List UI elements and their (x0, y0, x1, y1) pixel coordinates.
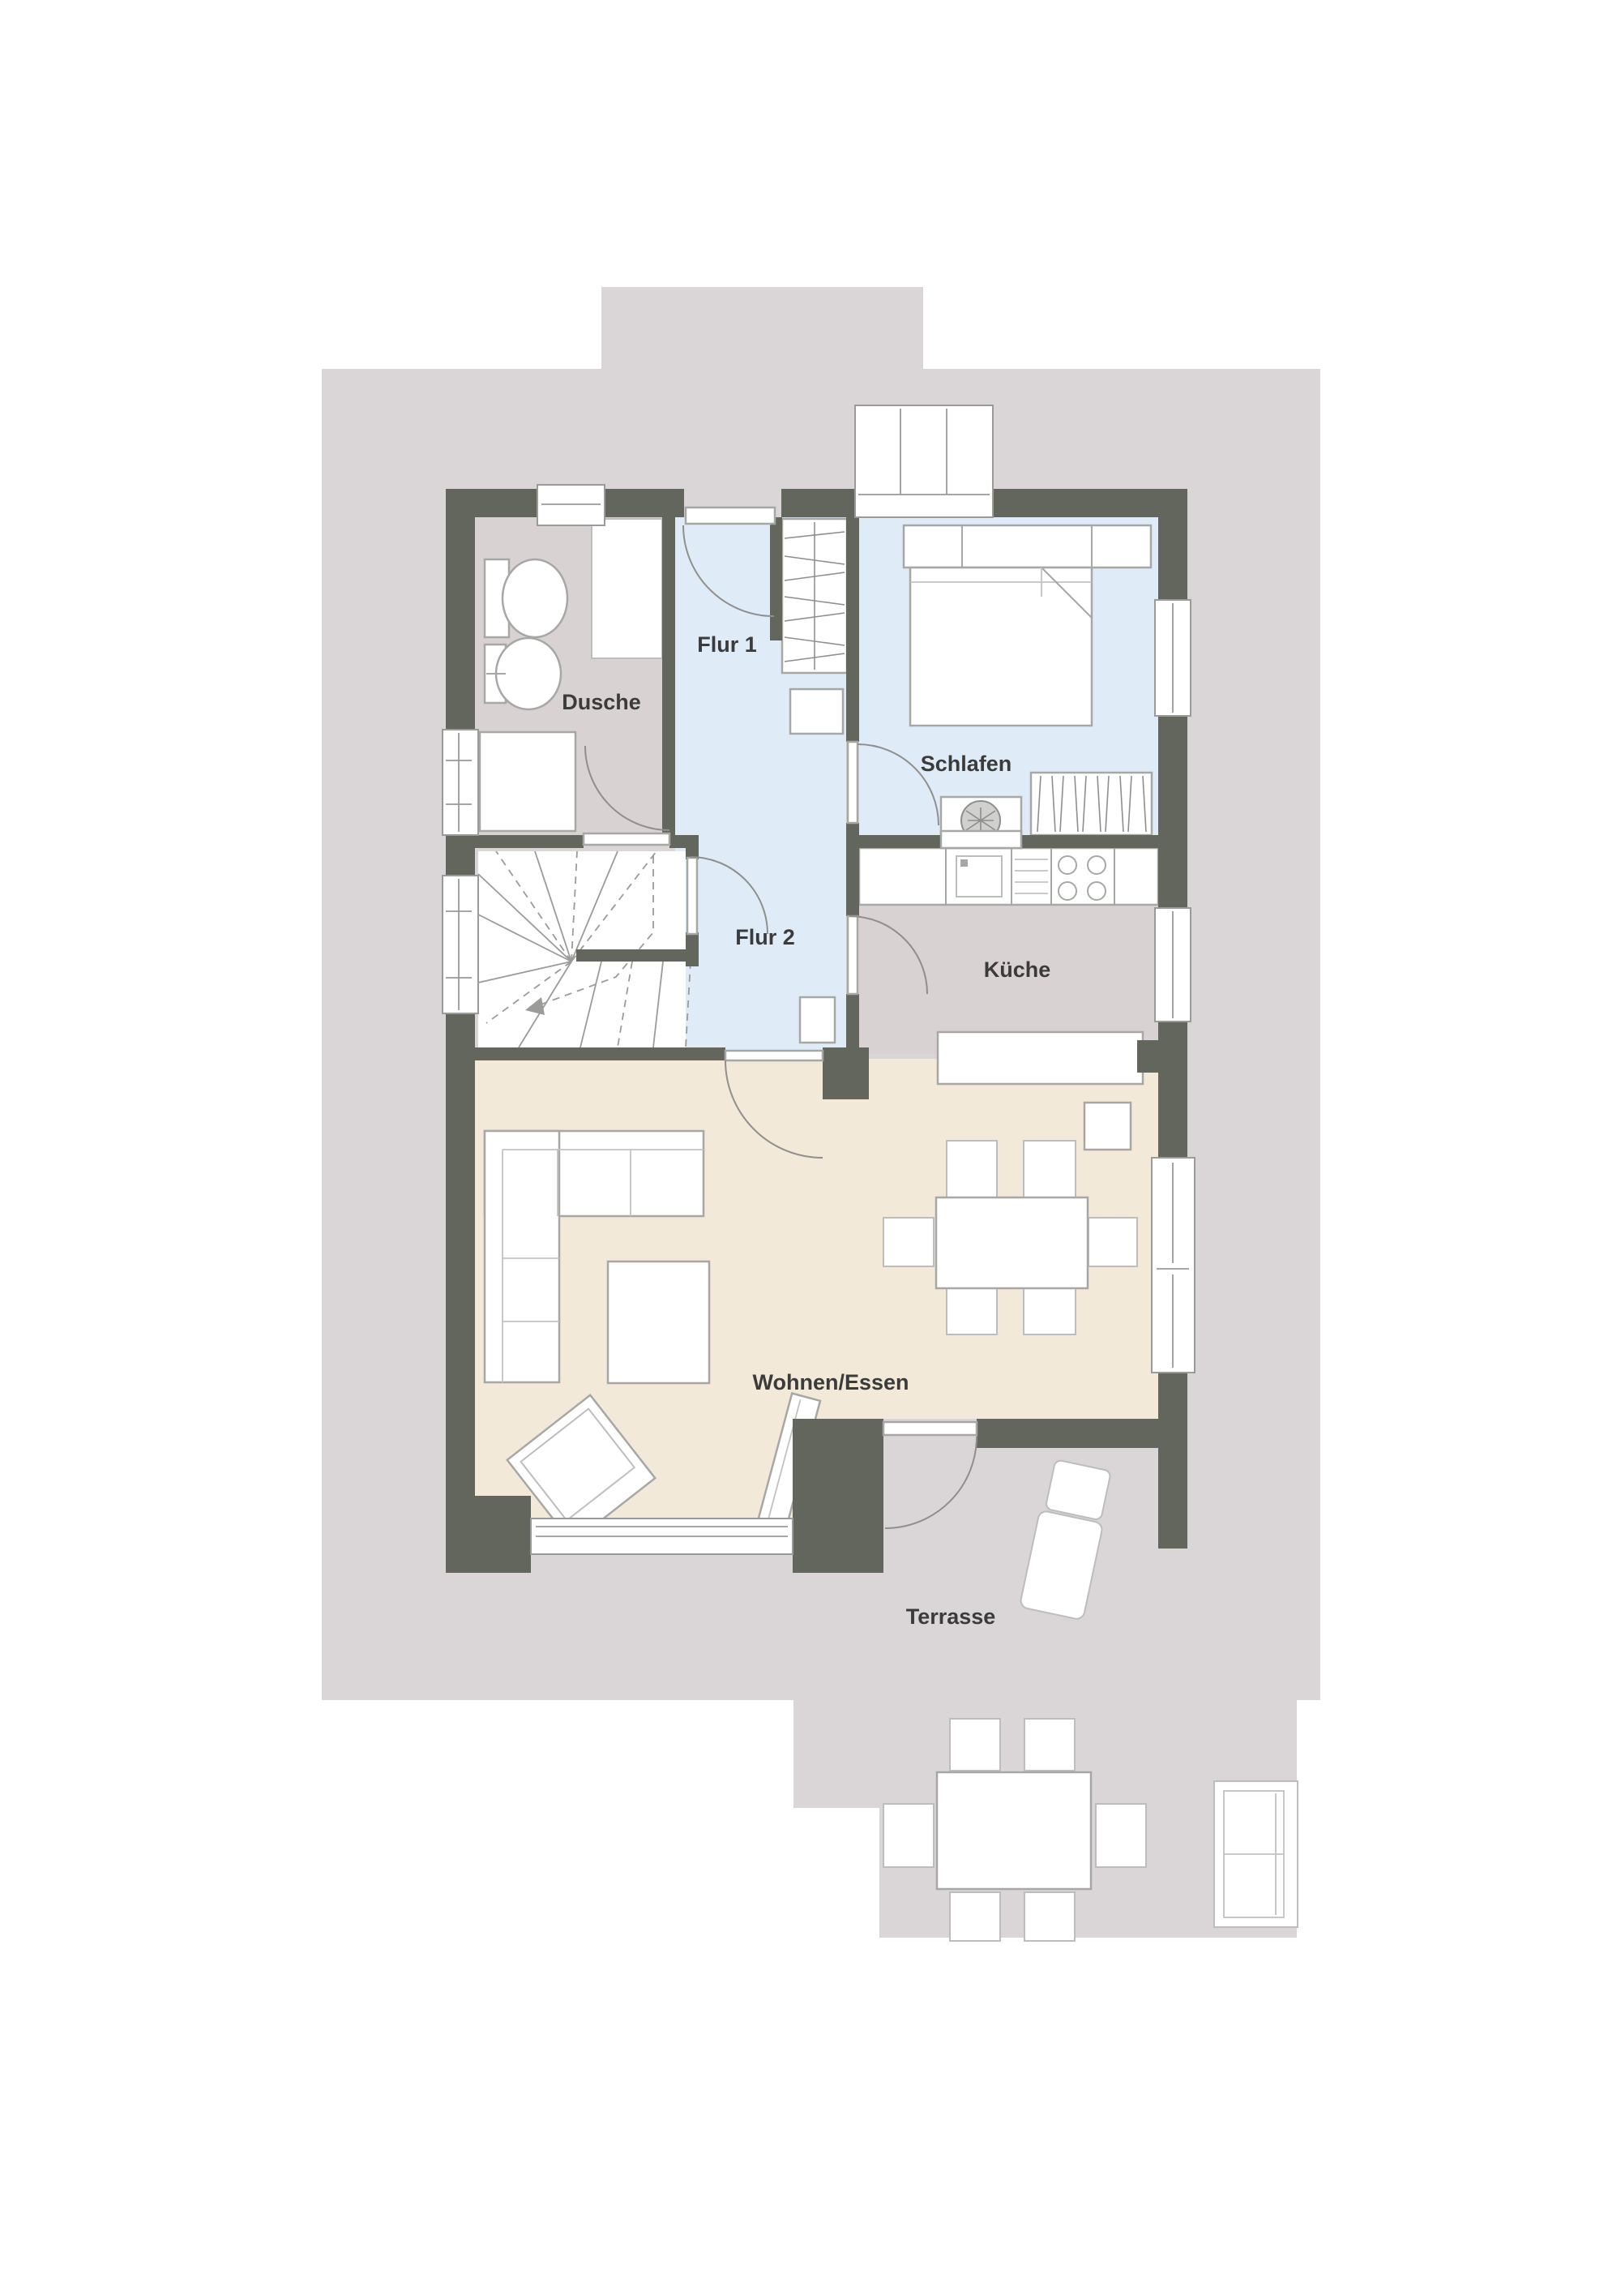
window-bottom-living (531, 1519, 793, 1554)
outdoor-chair (1024, 1892, 1075, 1941)
outdoor-chair (883, 1804, 934, 1867)
coffee-table (608, 1262, 709, 1383)
washer-unit (480, 732, 575, 831)
label-flur1: Flur 1 (697, 632, 757, 657)
hall-cabinet (790, 689, 843, 734)
outdoor-chair (950, 1719, 1000, 1771)
hall2-cabinet (800, 997, 835, 1043)
floor-plan-page: Flur 1 Dusche Schlafen Flur 2 Küche Wohn… (0, 0, 1621, 2296)
outdoor-chair (1096, 1804, 1146, 1867)
window-left-1 (443, 730, 478, 835)
window-entrance-bay (855, 405, 993, 517)
dining-table (936, 1197, 1088, 1288)
washbasin (485, 638, 561, 709)
corner-block-sw (446, 1496, 531, 1573)
outdoor-chair (950, 1892, 1000, 1941)
plant-sill-gap (941, 831, 1021, 848)
label-wohnen: Wohnen/Essen (752, 1370, 909, 1394)
window-right-essen (1152, 1158, 1195, 1373)
dining-chair (1024, 1286, 1076, 1334)
bed-headboard (904, 525, 1151, 568)
kitchen-pier (1137, 1040, 1170, 1073)
label-flur2: Flur 2 (735, 925, 795, 949)
kitchen-counter (859, 848, 1158, 905)
shower (592, 519, 662, 658)
floor-plan-drawing: Flur 1 Dusche Schlafen Flur 2 Küche Wohn… (0, 0, 1621, 2296)
bedroom-dresser (1031, 773, 1152, 835)
dining-chair (883, 1218, 934, 1266)
toilet (485, 559, 567, 637)
dining-chair (1089, 1218, 1137, 1266)
side-cabinet (1084, 1103, 1131, 1150)
window-top-dusche (537, 485, 605, 525)
dining-chair (1024, 1141, 1076, 1199)
terrace-top-extension (601, 287, 923, 369)
label-terrasse: Terrasse (906, 1604, 996, 1629)
outdoor-table (937, 1772, 1091, 1889)
wardrobe (782, 519, 847, 673)
window-right-kueche (1155, 908, 1191, 1022)
window-right-schlafen (1155, 600, 1191, 716)
label-dusche: Dusche (562, 690, 641, 714)
outdoor-chair (1024, 1719, 1075, 1771)
dining-chair (947, 1286, 997, 1334)
label-schlafen: Schlafen (921, 752, 1012, 776)
kitchen-island (938, 1032, 1143, 1084)
garden-bench (1214, 1781, 1298, 1927)
corner-pier-south (793, 1419, 883, 1573)
label-kueche: Küche (984, 957, 1051, 982)
window-left-2 (443, 876, 478, 1013)
sink-tap (960, 859, 968, 867)
dining-chair (947, 1141, 997, 1199)
